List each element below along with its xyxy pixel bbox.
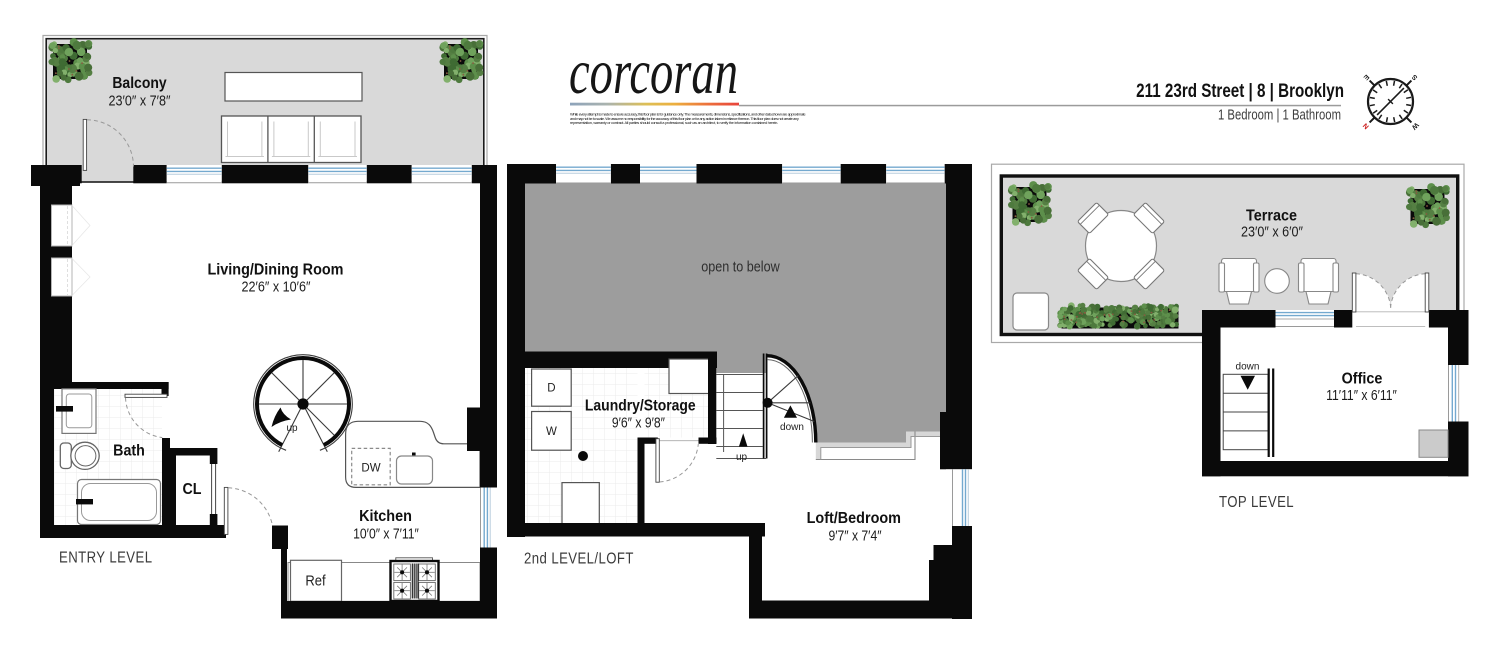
svg-text:Ref: Ref — [305, 573, 325, 589]
svg-text:11′11″ x 6′11″: 11′11″ x 6′11″ — [1326, 387, 1397, 403]
svg-text:D: D — [547, 383, 555, 395]
svg-text:Kitchen: Kitchen — [359, 507, 412, 525]
svg-text:1 Bedroom | 1 Bathroom: 1 Bedroom | 1 Bathroom — [1218, 106, 1341, 123]
svg-text:9′6″ x 9′8″: 9′6″ x 9′8″ — [612, 415, 665, 431]
svg-text:Office: Office — [1342, 370, 1383, 388]
svg-text:ENTRY LEVEL: ENTRY LEVEL — [59, 550, 152, 567]
svg-text:22′6″ x 10′6″: 22′6″ x 10′6″ — [242, 277, 311, 294]
svg-text:211 23rd Street | 8 | Brooklyn: 211 23rd Street | 8 | Brooklyn — [1136, 79, 1344, 101]
svg-text:down: down — [780, 422, 804, 433]
svg-text:open to below: open to below — [701, 257, 780, 274]
svg-text:10′0″ x 7′11″: 10′0″ x 7′11″ — [353, 526, 419, 542]
svg-text:23′0″ x 6′0″: 23′0″ x 6′0″ — [1241, 222, 1303, 239]
svg-text:up: up — [287, 423, 299, 434]
svg-text:DW: DW — [361, 463, 380, 475]
svg-text:representation, warranty or co: representation, warranty or contract. Al… — [570, 120, 778, 125]
svg-text:2nd LEVEL/LOFT: 2nd LEVEL/LOFT — [524, 551, 634, 568]
svg-text:down: down — [1236, 362, 1260, 373]
svg-text:W: W — [546, 426, 557, 438]
svg-text:Laundry/Storage: Laundry/Storage — [585, 398, 696, 415]
svg-text:Living/Dining Room: Living/Dining Room — [208, 261, 344, 279]
svg-text:up: up — [736, 452, 748, 463]
svg-text:corcoran: corcoran — [569, 36, 738, 107]
svg-text:TOP LEVEL: TOP LEVEL — [1219, 494, 1294, 511]
svg-text:Bath: Bath — [113, 443, 145, 460]
svg-text:Loft/Bedroom: Loft/Bedroom — [807, 509, 901, 527]
svg-text:CL: CL — [182, 482, 201, 499]
svg-text:9′7″ x 7′4″: 9′7″ x 7′4″ — [828, 528, 881, 544]
svg-text:Balcony: Balcony — [112, 75, 167, 92]
svg-text:23′0″ x 7′8″: 23′0″ x 7′8″ — [109, 91, 171, 108]
